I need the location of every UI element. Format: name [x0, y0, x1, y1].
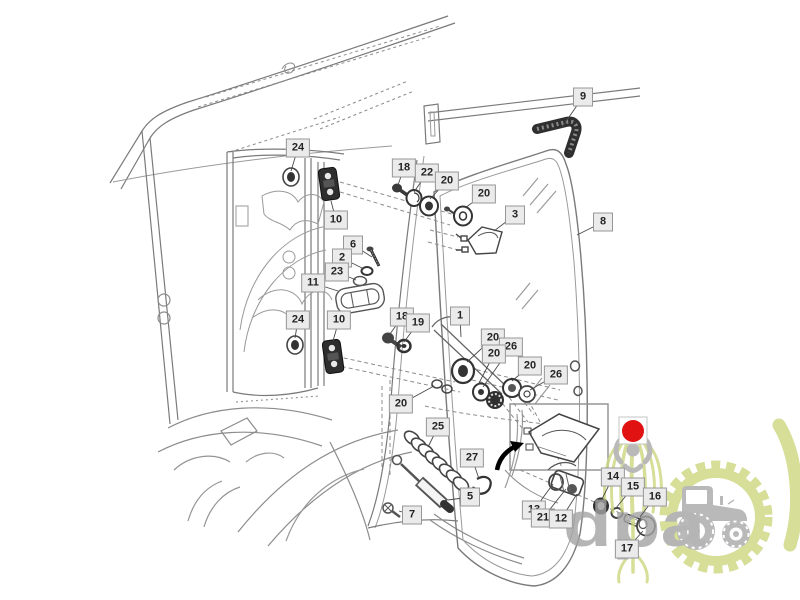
part-grommet-bottom — [287, 336, 303, 354]
part-pin-small — [444, 207, 455, 215]
callout-20: 20 — [472, 185, 496, 204]
part-grommet-top — [283, 168, 299, 186]
callout-23: 23 — [325, 263, 349, 282]
callout-12: 12 — [549, 510, 573, 529]
part-hinge-bottom — [322, 339, 344, 374]
watermark-leaf-edge — [779, 425, 797, 545]
callout-8: 8 — [593, 213, 613, 232]
part-elbow-9 — [537, 122, 577, 153]
callout-16: 16 — [643, 488, 667, 507]
diagram-stage: dpa 241062231124101819981822202031202620… — [0, 0, 800, 600]
watermark-layer: dpa — [563, 425, 797, 582]
detail-inset — [510, 404, 608, 470]
part-screw-6 — [367, 247, 380, 267]
callout-9: 9 — [573, 88, 593, 107]
callout-5: 5 — [460, 488, 480, 507]
part-roller-20b — [454, 207, 472, 226]
callout-10: 10 — [324, 211, 348, 230]
callout-3: 3 — [505, 206, 525, 225]
callout-1: 1 — [450, 307, 470, 326]
parts-diagram-artwork: dpa — [0, 0, 800, 600]
callout-27: 27 — [460, 449, 484, 468]
part-hinge-top — [318, 167, 340, 201]
callout-17: 17 — [615, 540, 639, 559]
part-washer-2 — [362, 267, 373, 275]
callout-25: 25 — [426, 418, 450, 437]
callout-15: 15 — [621, 478, 645, 497]
callout-24: 24 — [286, 139, 310, 158]
callout-20: 20 — [518, 357, 542, 376]
callout-10: 10 — [327, 311, 351, 330]
callout-7: 7 — [402, 506, 422, 525]
part-ring-23 — [354, 277, 367, 286]
part-striker-3 — [456, 227, 502, 254]
callout-19: 19 — [406, 314, 430, 333]
marker-frame — [619, 417, 647, 444]
callout-11: 11 — [301, 274, 325, 293]
part-screw-7 — [383, 503, 400, 517]
part-roller-20a — [420, 197, 438, 216]
callout-20: 20 — [389, 395, 413, 414]
callout-18: 18 — [392, 159, 416, 178]
callout-20: 20 — [435, 172, 459, 191]
callout-24: 24 — [286, 311, 310, 330]
callout-26: 26 — [544, 366, 568, 385]
callout-20: 20 — [482, 345, 506, 364]
